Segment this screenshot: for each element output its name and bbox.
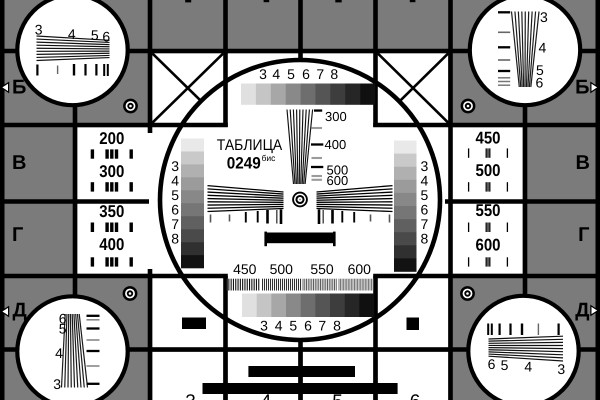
svg-text:4: 4 bbox=[55, 345, 63, 361]
svg-text:Б: Б bbox=[12, 77, 26, 99]
svg-text:8: 8 bbox=[421, 231, 429, 247]
svg-text:3: 3 bbox=[540, 9, 548, 25]
svg-text:300: 300 bbox=[325, 109, 347, 124]
svg-text:600: 600 bbox=[327, 173, 349, 188]
svg-text:3: 3 bbox=[185, 391, 196, 400]
svg-text:3: 3 bbox=[260, 318, 268, 334]
svg-text:Д: Д bbox=[13, 300, 27, 322]
svg-text:200: 200 bbox=[99, 129, 124, 148]
svg-text:В: В bbox=[576, 152, 590, 174]
svg-text:8: 8 bbox=[171, 231, 179, 247]
svg-text:4: 4 bbox=[524, 359, 532, 375]
svg-text:4: 4 bbox=[275, 318, 283, 334]
svg-text:5: 5 bbox=[332, 391, 343, 400]
svg-text:5: 5 bbox=[289, 318, 297, 334]
svg-text:450: 450 bbox=[233, 261, 257, 277]
svg-text:6: 6 bbox=[488, 356, 496, 372]
svg-text:5: 5 bbox=[59, 321, 67, 337]
svg-text:500: 500 bbox=[476, 161, 501, 180]
svg-text:5: 5 bbox=[287, 66, 295, 82]
svg-text:5: 5 bbox=[501, 357, 509, 373]
svg-text:300: 300 bbox=[99, 162, 124, 181]
svg-text:450: 450 bbox=[476, 128, 501, 147]
svg-text:550: 550 bbox=[476, 201, 501, 220]
svg-text:ТАБЛИЦА: ТАБЛИЦА bbox=[217, 137, 283, 154]
svg-text:6: 6 bbox=[304, 318, 312, 334]
svg-text:400: 400 bbox=[325, 137, 347, 152]
svg-text:6: 6 bbox=[302, 66, 310, 82]
svg-text:Г: Г bbox=[12, 224, 23, 246]
svg-text:7: 7 bbox=[316, 66, 324, 82]
svg-text:Д: Д bbox=[575, 300, 589, 322]
svg-text:550: 550 bbox=[310, 261, 334, 277]
svg-text:4: 4 bbox=[68, 26, 76, 42]
svg-text:3: 3 bbox=[259, 66, 267, 82]
svg-text:6: 6 bbox=[536, 74, 544, 90]
svg-text:3: 3 bbox=[35, 22, 43, 38]
svg-text:7: 7 bbox=[318, 318, 326, 334]
svg-text:Б: Б bbox=[575, 77, 589, 99]
svg-text:600: 600 bbox=[348, 261, 372, 277]
svg-text:6: 6 bbox=[102, 29, 110, 45]
svg-text:4: 4 bbox=[539, 40, 547, 56]
svg-text:500: 500 bbox=[270, 261, 294, 277]
svg-text:4: 4 bbox=[272, 66, 280, 82]
svg-text:0249: 0249 bbox=[227, 155, 261, 173]
svg-text:6: 6 bbox=[410, 391, 421, 400]
svg-text:8: 8 bbox=[330, 66, 338, 82]
svg-text:350: 350 bbox=[99, 202, 124, 221]
svg-text:5: 5 bbox=[91, 27, 99, 43]
svg-text:Г: Г bbox=[578, 224, 589, 246]
svg-text:4: 4 bbox=[261, 391, 272, 400]
svg-text:400: 400 bbox=[99, 235, 124, 254]
svg-text:8: 8 bbox=[333, 318, 341, 334]
svg-text:3: 3 bbox=[557, 361, 565, 377]
svg-text:3: 3 bbox=[53, 376, 61, 392]
svg-text:600: 600 bbox=[476, 235, 501, 254]
svg-text:бис: бис bbox=[262, 153, 277, 163]
svg-text:В: В bbox=[12, 152, 26, 174]
